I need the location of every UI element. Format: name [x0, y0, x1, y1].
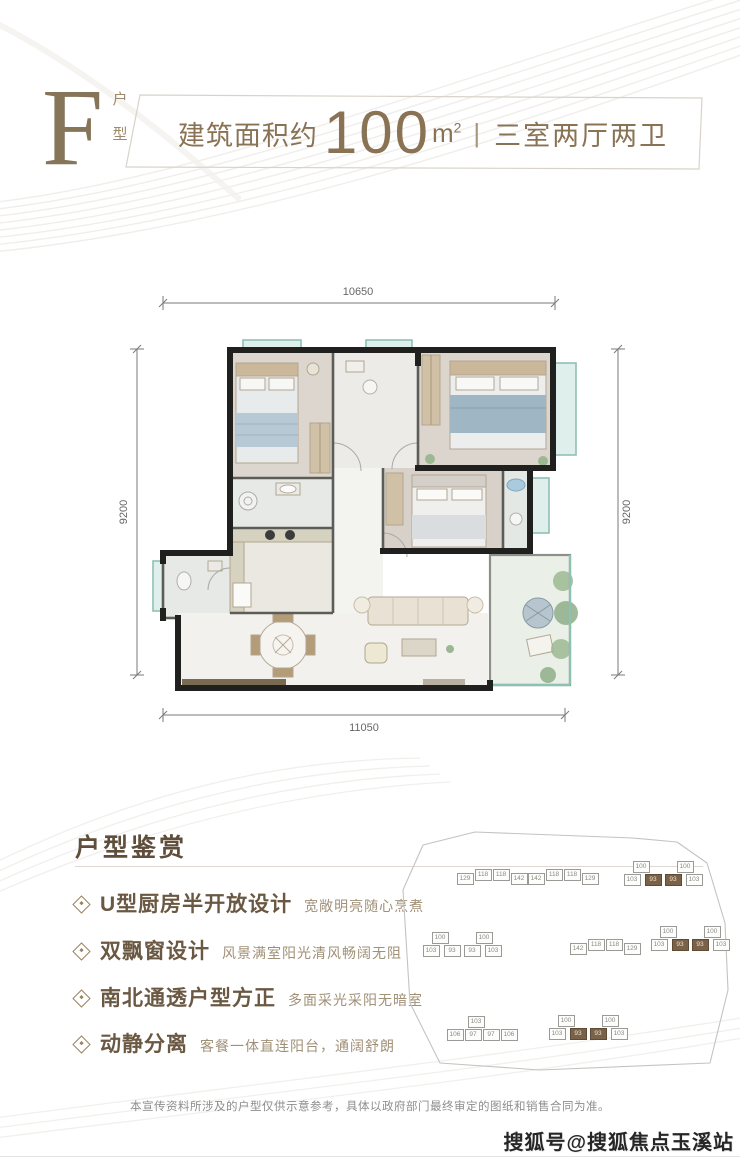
area-unit: m2: [432, 118, 461, 149]
watermark-text: 搜狐号@搜狐焦点玉溪站: [503, 1126, 734, 1155]
feature-desc: 客餐一体直连阳台，通阔舒朗: [200, 1036, 395, 1056]
dim-bottom: 11050: [349, 722, 379, 734]
unit-type-letter: F: [42, 72, 103, 182]
feature-title: U型厨房半开放设计: [100, 888, 292, 918]
area-value: 100: [324, 103, 430, 163]
diamond-bullet-icon: [72, 942, 90, 960]
diamond-bullet-icon: [72, 895, 90, 913]
diamond-bullet-icon: [72, 1035, 90, 1053]
feature-title: 动静分离: [100, 1028, 188, 1058]
header-divider: |: [473, 118, 480, 149]
dim-top: 10650: [343, 286, 374, 298]
dim-left: 9200: [118, 500, 130, 524]
dim-right: 9200: [621, 500, 633, 524]
feature-title: 南北通透户型方正: [100, 982, 276, 1012]
feature-item-baywindow: 双飘窗设计 风景满室阳光清风畅阔无阻: [75, 935, 402, 965]
disclaimer-text: 本宣传资料所涉及的户型仅供示意参考，具体以政府部门最终审定的图纸和销售合同为准。: [0, 1098, 740, 1114]
feature-desc: 风景满室阳光清风畅阔无阻: [222, 943, 402, 963]
siteplan-boundary: [398, 826, 740, 1084]
feature-item-northsouth: 南北通透户型方正 多面采光采阳无暗室: [75, 982, 423, 1012]
area-prefix: 建筑面积约: [178, 114, 318, 153]
feature-item-zoning: 动静分离 客餐一体直连阳台，通阔舒朗: [75, 1028, 395, 1058]
section-title: 户型鉴赏: [75, 828, 187, 864]
room-layout-text: 三室两厅两卫: [494, 114, 668, 153]
floorplan-drawing: 10650 11050 9200 9200: [118, 283, 642, 753]
bottom-divider: [0, 1156, 740, 1157]
feature-item-kitchen: U型厨房半开放设计 宽敞明亮随心烹煮: [75, 888, 424, 918]
header-banner: 建筑面积约 100 m2 | 三室两厅两卫: [140, 96, 706, 170]
diamond-bullet-icon: [72, 989, 90, 1007]
feature-title: 双飘窗设计: [100, 935, 210, 965]
